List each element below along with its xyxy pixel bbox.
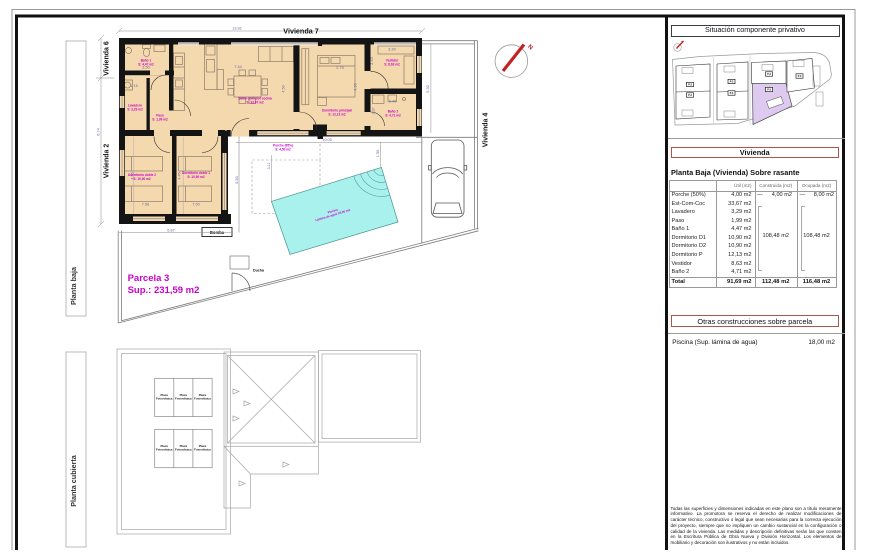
svg-text:3.11: 3.11 — [267, 162, 271, 169]
svg-text:N: N — [526, 43, 534, 52]
svg-text:S: 12,13 m2: S: 12,13 m2 — [328, 113, 346, 117]
svg-text:S: 4,50 m2: S: 4,50 m2 — [275, 148, 291, 152]
svg-text:Fotovoltaica: Fotovoltaica — [175, 447, 192, 451]
svg-text:Ducha: Ducha — [253, 269, 265, 273]
svg-text:1.87: 1.87 — [372, 107, 376, 114]
svg-text:2.40: 2.40 — [389, 100, 396, 104]
svg-text:Fotovoltaica: Fotovoltaica — [194, 447, 211, 451]
svg-text:S: 4,47 m2: S: 4,47 m2 — [138, 63, 154, 67]
svg-text:Fotovoltaica: Fotovoltaica — [156, 396, 173, 400]
svg-text:Vivienda 6: Vivienda 6 — [104, 41, 111, 76]
svg-text:5.87: 5.87 — [167, 228, 174, 232]
svg-text:Planta baja: Planta baja — [69, 266, 78, 305]
svg-text:4.50: 4.50 — [282, 85, 286, 92]
svg-text:S: 3,29 m2: S: 3,29 m2 — [127, 108, 143, 112]
svg-text:6.74: 6.74 — [97, 128, 101, 135]
svg-text:3.20: 3.20 — [388, 48, 395, 52]
svg-text:13.92: 13.92 — [232, 27, 242, 31]
svg-text:S: 10,90 m2: S: 10,90 m2 — [187, 175, 205, 179]
svg-text:Fotovoltaica: Fotovoltaica — [175, 396, 192, 400]
svg-text:1.50: 1.50 — [376, 150, 380, 157]
svg-text:Parcela 3: Parcela 3 — [128, 273, 170, 284]
svg-text:S: 10,90 m2: S: 10,90 m2 — [133, 177, 151, 181]
svg-text:Vivienda 4: Vivienda 4 — [483, 113, 490, 148]
svg-text:Fotovoltaica: Fotovoltaica — [156, 447, 173, 451]
svg-text:7.50: 7.50 — [192, 203, 199, 207]
svg-text:5.30: 5.30 — [426, 85, 430, 92]
svg-text:7.56: 7.56 — [142, 203, 149, 207]
svg-text:S: 8,63 m2: S: 8,63 m2 — [384, 63, 400, 67]
svg-text:5.50: 5.50 — [235, 176, 239, 183]
svg-text:7.44: 7.44 — [234, 65, 241, 69]
svg-text:10.05: 10.05 — [322, 138, 332, 142]
svg-text:Vivienda 2: Vivienda 2 — [104, 144, 111, 179]
svg-text:Fotovoltaica: Fotovoltaica — [194, 396, 211, 400]
svg-text:2.43: 2.43 — [370, 57, 374, 64]
svg-text:S: 4,71 m2: S: 4,71 m2 — [385, 114, 401, 118]
svg-text:Vivienda 7: Vivienda 7 — [283, 27, 318, 36]
svg-text:4.45: 4.45 — [178, 172, 182, 179]
svg-text:1.15: 1.15 — [130, 84, 137, 88]
svg-text:S: 33,67 m2: S: 33,67 m2 — [246, 101, 264, 105]
svg-text:Planta cubierta: Planta cubierta — [69, 454, 78, 507]
svg-text:S: 1,99 m2: S: 1,99 m2 — [152, 118, 168, 122]
svg-text:4.90: 4.90 — [354, 83, 358, 90]
svg-text:2.79: 2.79 — [336, 66, 343, 70]
svg-text:Sup.: 231,59 m2: Sup.: 231,59 m2 — [128, 285, 200, 296]
